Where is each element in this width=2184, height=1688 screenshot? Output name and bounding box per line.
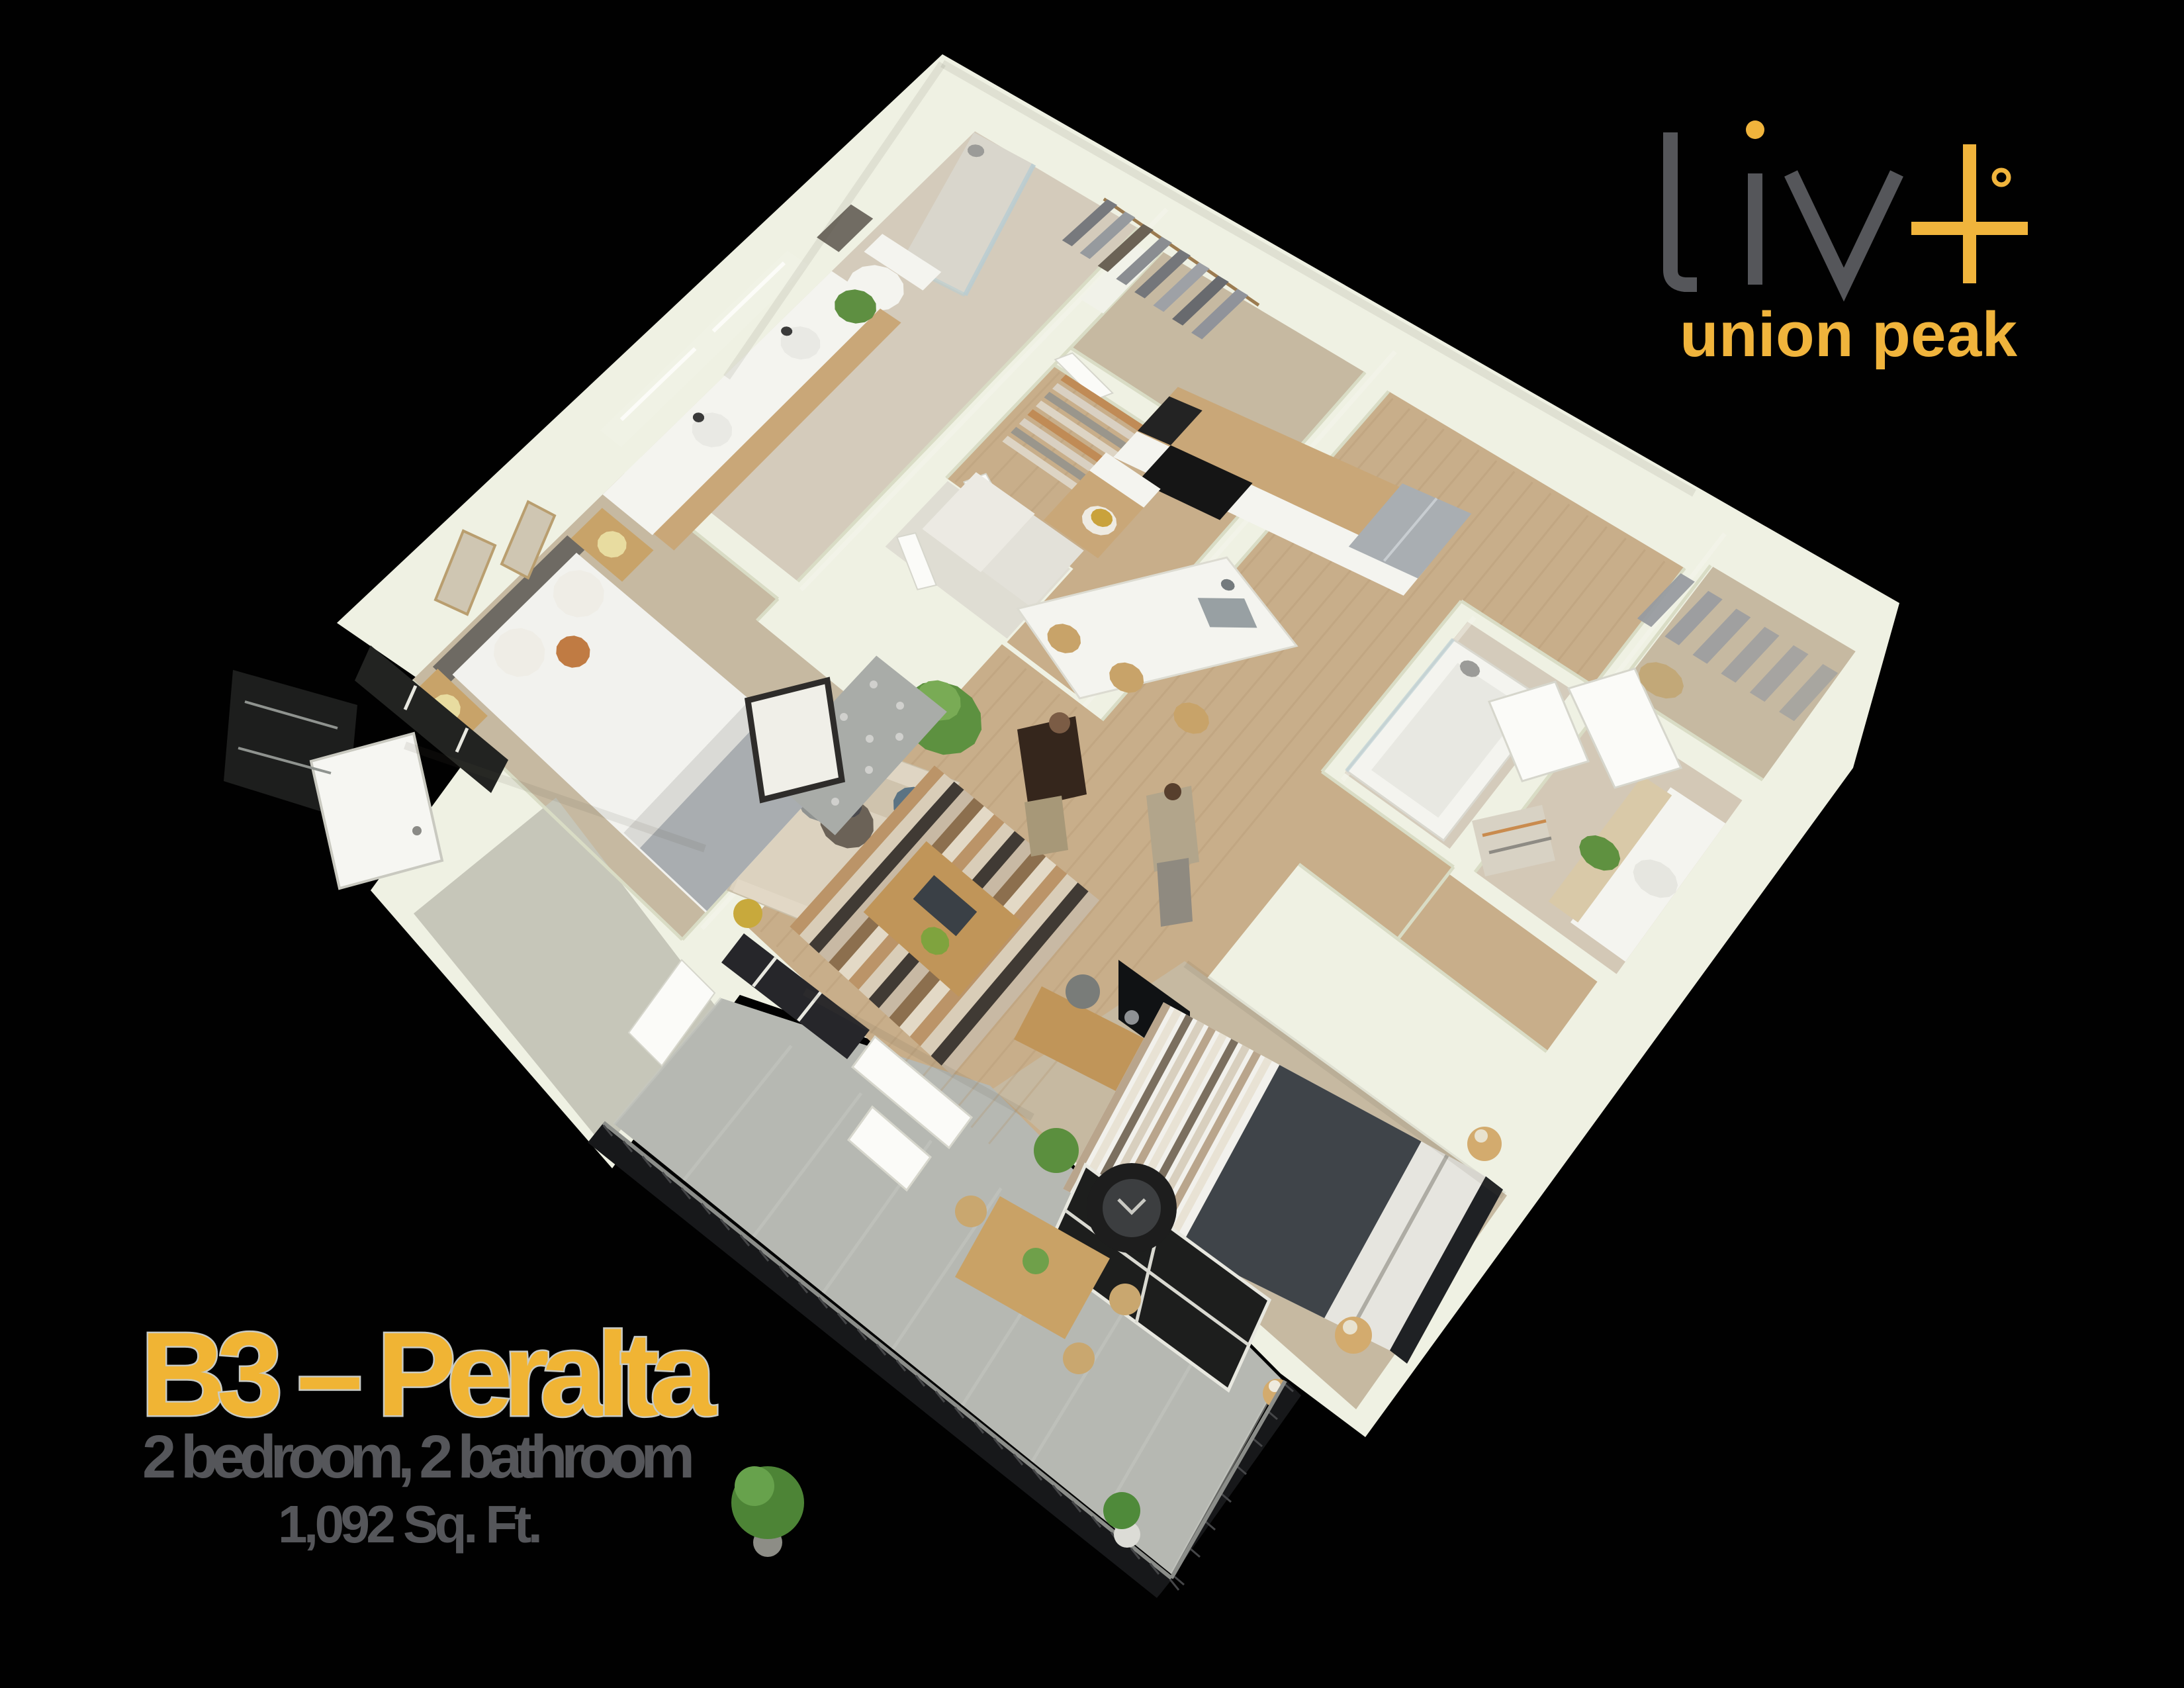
svg-text:union peak: union peak	[1680, 299, 2020, 370]
svg-text:1,092 Sq. Ft.: 1,092 Sq. Ft.	[278, 1495, 543, 1554]
svg-text:B3 – Peralta: B3 – Peralta	[140, 1308, 717, 1441]
svg-text:2 bedroom, 2 bathroom: 2 bedroom, 2 bathroom	[142, 1423, 695, 1491]
